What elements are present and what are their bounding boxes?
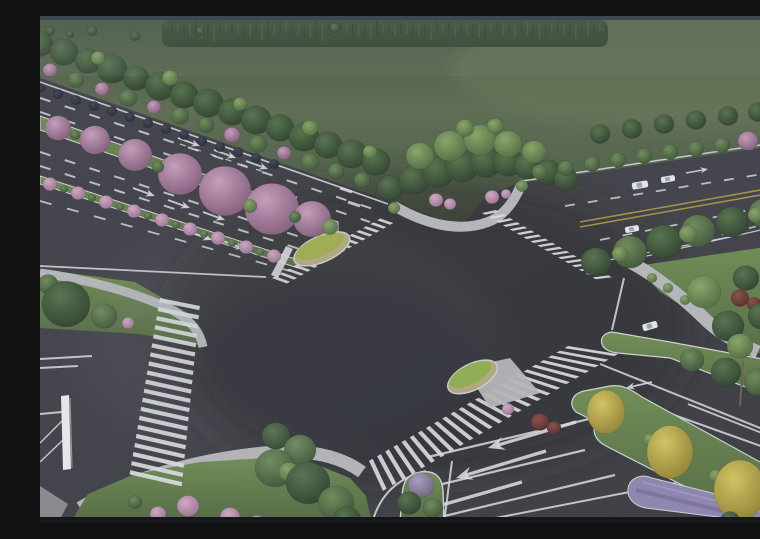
photo-border-top [40,16,760,20]
global-haze [40,16,760,523]
scene-canvas [40,16,760,523]
photo-artifacts [40,16,760,523]
photo-border-bottom [40,517,760,523]
intersection-rendering: Aerial architectural rendering of a land… [40,16,760,523]
